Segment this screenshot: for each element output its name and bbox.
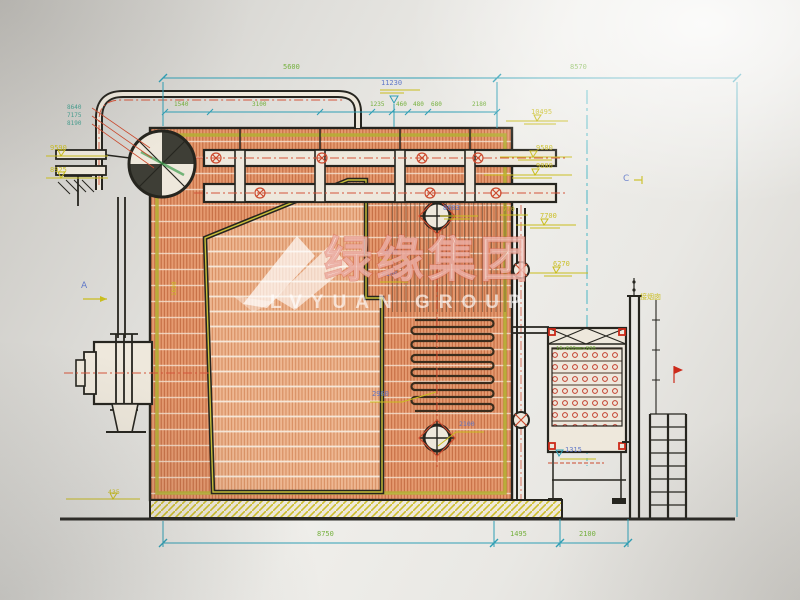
- dim-7700: 7700: [540, 213, 557, 220]
- dim-2960: 2960: [372, 391, 389, 398]
- dim-2100-mid: 2100: [459, 421, 475, 428]
- dim-2180: 2180: [472, 102, 486, 108]
- dim-stack-3: 8190: [67, 121, 81, 127]
- dim-1540: 1540: [174, 102, 188, 108]
- dim-435: 435: [108, 489, 120, 496]
- foundation-ground: [60, 500, 735, 519]
- economizer: [548, 90, 631, 504]
- dim-1495: 1495: [510, 531, 527, 538]
- dim-8750: 8750: [317, 531, 334, 538]
- dim-9080: 9080: [536, 163, 553, 170]
- dim-11230: 11230: [381, 80, 402, 87]
- dim-5620: 5620: [382, 249, 398, 256]
- dim-5600: 5600: [283, 64, 300, 71]
- flue-connection-label: 接烟囱: [640, 294, 661, 301]
- dim-6100: 6100: [382, 271, 398, 278]
- dim-stack-1: 8640: [67, 105, 81, 111]
- red-flag-marker: [674, 366, 683, 374]
- dim-2100: 2100: [579, 531, 596, 538]
- dim-8603: 8603: [443, 205, 460, 212]
- dim-1235: 1235: [370, 102, 384, 108]
- dim-10495: 10495: [531, 109, 552, 116]
- support-tower-ladder: [650, 300, 686, 519]
- dim-8570: 8570: [570, 64, 587, 71]
- flue-duct: [627, 278, 642, 519]
- steam-drum: [129, 131, 195, 197]
- dim-stack-2: 7175: [67, 113, 81, 119]
- dim-3100: 3100: [252, 102, 266, 108]
- boiler-drawing-linework: [0, 0, 800, 600]
- dim-8925: 8925: [50, 167, 67, 174]
- dim-1600: 1600: [172, 282, 178, 296]
- photographed-boiler-drawing: 5600 8570 11230 1540 3100 1235 460 480 6…: [0, 0, 800, 600]
- dim-460: 460: [396, 102, 407, 108]
- dim-770: 770: [503, 206, 515, 213]
- dim-6270: 6270: [553, 261, 570, 268]
- section-marker-a: A: [81, 282, 87, 291]
- dim-9580: 9580: [536, 145, 553, 152]
- section-a-arrow: [100, 296, 107, 302]
- dim-680: 680: [431, 102, 442, 108]
- section-marker-c: C: [623, 175, 629, 184]
- dim-480: 480: [413, 102, 424, 108]
- dim-9590: 9590: [50, 145, 67, 152]
- dim-1315: 1315: [565, 447, 582, 454]
- right-downcomer: [512, 205, 549, 500]
- economizer-spec-label: 16×600mm×800: [556, 347, 596, 353]
